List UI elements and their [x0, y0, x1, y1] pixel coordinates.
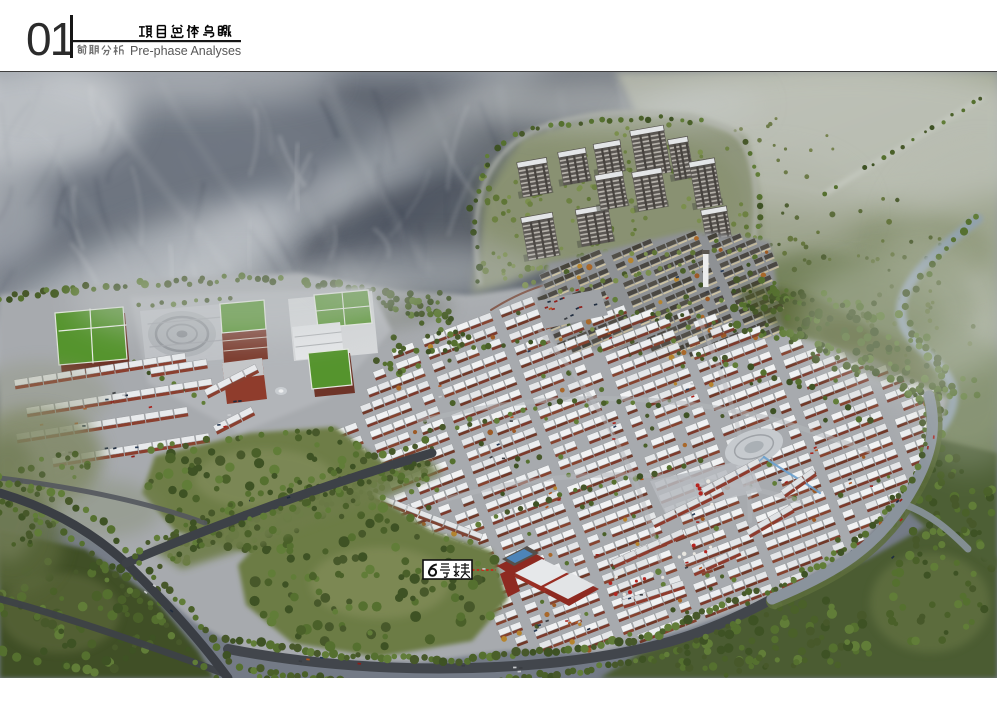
svg-text:Pre-phase Analyses: Pre-phase Analyses	[130, 44, 241, 58]
svg-text:01: 01	[26, 13, 74, 65]
